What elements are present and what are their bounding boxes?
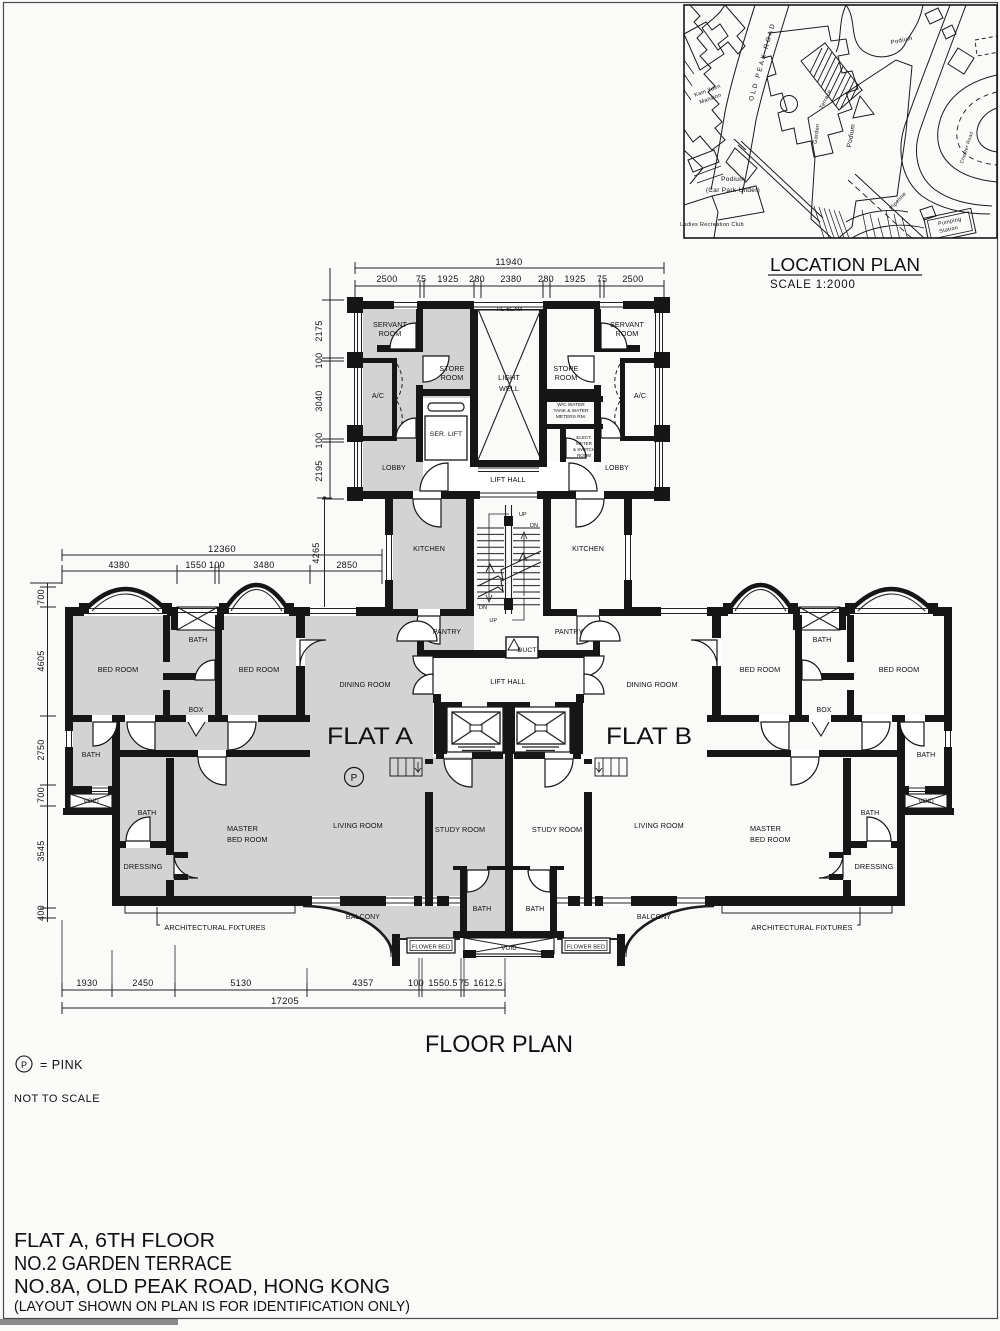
svg-text:SCALE 1:2000: SCALE 1:2000 (770, 279, 856, 291)
svg-text:Podium: Podium (721, 176, 745, 183)
svg-text:Garden: Garden (813, 123, 822, 144)
svg-text:4380: 4380 (108, 560, 129, 570)
svg-text:BATH: BATH (813, 637, 832, 644)
svg-text:700: 700 (36, 787, 46, 803)
svg-text:2450: 2450 (132, 978, 153, 988)
svg-text:DINING ROOM: DINING ROOM (339, 680, 390, 689)
svg-text:BOX: BOX (188, 707, 203, 714)
svg-text:STUDY ROOM: STUDY ROOM (435, 825, 485, 834)
svg-text:BATH: BATH (917, 752, 936, 759)
svg-text:P: P (21, 1060, 27, 1070)
svg-text:PANTRY: PANTRY (555, 629, 584, 636)
svg-text:1550: 1550 (185, 560, 206, 570)
svg-text:BALCONY: BALCONY (346, 914, 380, 921)
svg-text:3480: 3480 (253, 560, 274, 570)
svg-text:4357: 4357 (352, 978, 373, 988)
svg-text:W/C WATER: W/C WATER (557, 402, 585, 408)
svg-text:2195: 2195 (314, 460, 324, 481)
svg-text:2750: 2750 (36, 739, 46, 760)
svg-text:1925: 1925 (564, 274, 585, 284)
svg-text:Podium: Podium (846, 123, 857, 148)
svg-text:& SWITCH: & SWITCH (573, 447, 595, 452)
svg-text:1612.5: 1612.5 (473, 978, 502, 988)
svg-text:100: 100 (314, 433, 324, 449)
svg-text:SER. LIFT: SER. LIFT (430, 431, 463, 438)
svg-text:ELECT.: ELECT. (576, 435, 591, 440)
svg-text:LOBBY: LOBBY (382, 465, 406, 472)
svg-text:(LAYOUT SHOWN ON PLAN IS FOR I: (LAYOUT SHOWN ON PLAN IS FOR IDENTIFICAT… (14, 1298, 410, 1315)
svg-text:100: 100 (314, 353, 324, 369)
svg-text:5130: 5130 (230, 978, 251, 988)
svg-text:3040: 3040 (314, 390, 324, 411)
svg-text:LOBBY: LOBBY (605, 465, 629, 472)
svg-text:BED ROOM: BED ROOM (750, 835, 791, 844)
svg-text:LIFT HALL: LIFT HALL (490, 475, 526, 484)
svg-text:ROOM: ROOM (441, 373, 464, 382)
svg-text:BATH: BATH (189, 637, 208, 644)
svg-text:2850: 2850 (336, 560, 357, 570)
svg-text:= PINK: = PINK (40, 1058, 83, 1072)
svg-text:TIE BEAM: TIE BEAM (496, 307, 523, 313)
svg-text:100: 100 (209, 560, 225, 570)
svg-text:WELL: WELL (499, 384, 519, 393)
svg-text:LOCATION PLAN: LOCATION PLAN (770, 254, 920, 275)
svg-text:BATH: BATH (138, 810, 157, 817)
svg-text:METERS RM.: METERS RM. (556, 414, 586, 420)
svg-text:SERVANT: SERVANT (373, 320, 407, 329)
svg-text:BED ROOM: BED ROOM (740, 665, 781, 674)
svg-text:2175: 2175 (314, 320, 324, 341)
svg-text:400: 400 (36, 905, 46, 921)
svg-text:BATH: BATH (473, 906, 492, 913)
svg-text:3545: 3545 (36, 840, 46, 861)
svg-text:Pipeline: Pipeline (889, 191, 908, 211)
svg-text:DN: DN (479, 605, 487, 611)
svg-text:100: 100 (408, 978, 424, 988)
svg-text:NOT TO SCALE: NOT TO SCALE (14, 1093, 100, 1105)
svg-text:(Car Park Under): (Car Park Under) (706, 187, 760, 194)
svg-text:BATH: BATH (82, 752, 101, 759)
svg-text:11940: 11940 (495, 257, 522, 268)
svg-text:STUDY ROOM: STUDY ROOM (532, 825, 582, 834)
svg-text:75: 75 (416, 274, 427, 284)
svg-text:DINING ROOM: DINING ROOM (626, 680, 677, 689)
svg-text:LIVING ROOM: LIVING ROOM (634, 821, 684, 830)
svg-text:NO.8A, OLD PEAK ROAD, HONG KON: NO.8A, OLD PEAK ROAD, HONG KONG (14, 1276, 390, 1298)
svg-text:KITCHEN: KITCHEN (413, 545, 445, 553)
svg-text:TANK & WATER: TANK & WATER (553, 408, 589, 414)
svg-text:1930: 1930 (76, 978, 97, 988)
svg-text:2500: 2500 (376, 274, 397, 284)
svg-text:1925: 1925 (437, 274, 458, 284)
svg-text:ROOM: ROOM (379, 329, 402, 338)
svg-text:LIGHT: LIGHT (498, 373, 520, 382)
svg-text:FLOWER BED: FLOWER BED (412, 945, 450, 951)
svg-text:BOX: BOX (816, 707, 831, 714)
svg-text:Podium: Podium (890, 36, 913, 46)
svg-text:280: 280 (469, 274, 485, 284)
svg-text:STORE: STORE (553, 364, 578, 373)
svg-text:VOID: VOID (83, 798, 99, 805)
svg-text:MASTER: MASTER (227, 824, 258, 833)
svg-text:SERVANT: SERVANT (610, 320, 644, 329)
svg-text:FLOOR PLAN: FLOOR PLAN (425, 1031, 573, 1058)
svg-text:DRESSING: DRESSING (855, 862, 894, 871)
svg-text:280: 280 (538, 274, 554, 284)
svg-text:BED ROOM: BED ROOM (98, 665, 139, 674)
svg-text:FLAT A: FLAT A (327, 723, 413, 750)
svg-text:ROOM: ROOM (616, 329, 639, 338)
svg-text:STORE: STORE (439, 364, 464, 373)
svg-text:MASTER: MASTER (750, 824, 781, 833)
svg-text:DUCT: DUCT (517, 647, 536, 654)
svg-text:VOID: VOID (918, 798, 934, 805)
svg-text:ROOM: ROOM (555, 373, 578, 382)
svg-text:ROOM: ROOM (577, 453, 591, 458)
svg-text:4605: 4605 (36, 650, 46, 671)
svg-text:A/C: A/C (372, 391, 384, 400)
svg-text:BED ROOM: BED ROOM (239, 665, 280, 674)
svg-text:UP: UP (519, 512, 527, 518)
svg-text:17205: 17205 (271, 996, 299, 1007)
svg-text:P: P (351, 773, 358, 784)
svg-text:2380: 2380 (500, 274, 521, 284)
svg-text:Ladies Recreation Club: Ladies Recreation Club (680, 222, 744, 228)
svg-text:DRESSING: DRESSING (124, 862, 163, 871)
svg-text:4265: 4265 (311, 542, 321, 563)
svg-text:1550.5: 1550.5 (428, 978, 457, 988)
svg-text:75: 75 (597, 274, 608, 284)
svg-text:BALCONY: BALCONY (637, 914, 671, 921)
svg-text:LIVING ROOM: LIVING ROOM (333, 821, 383, 830)
svg-text:FLAT A, 6TH FLOOR: FLAT A, 6TH FLOOR (14, 1230, 215, 1252)
svg-text:A/C: A/C (634, 391, 646, 400)
svg-text:BATH: BATH (861, 810, 880, 817)
svg-text:700: 700 (36, 589, 46, 605)
svg-text:KITCHEN: KITCHEN (572, 545, 604, 553)
svg-text:12360: 12360 (208, 544, 236, 555)
svg-text:FLOWER BED: FLOWER BED (567, 945, 605, 951)
svg-text:ARCHITECTURAL FIXTURES: ARCHITECTURAL FIXTURES (164, 923, 265, 932)
svg-text:VOID: VOID (501, 945, 517, 952)
svg-text:DN: DN (530, 523, 538, 529)
svg-text:Chester Road: Chester Road (959, 131, 975, 164)
svg-text:NO.2 GARDEN TERRACE: NO.2 GARDEN TERRACE (14, 1253, 232, 1275)
svg-text:LIFT HALL: LIFT HALL (490, 677, 526, 686)
svg-text:BED ROOM: BED ROOM (227, 835, 268, 844)
svg-text:2500: 2500 (622, 274, 643, 284)
svg-text:UP: UP (489, 618, 497, 624)
svg-text:BED ROOM: BED ROOM (879, 665, 920, 674)
svg-text:METER: METER (576, 441, 593, 446)
svg-text:PANTRY: PANTRY (433, 629, 462, 636)
svg-text:BATH: BATH (526, 906, 545, 913)
svg-text:FLAT B: FLAT B (606, 723, 692, 750)
svg-text:ARCHITECTURAL FIXTURES: ARCHITECTURAL FIXTURES (751, 923, 852, 932)
